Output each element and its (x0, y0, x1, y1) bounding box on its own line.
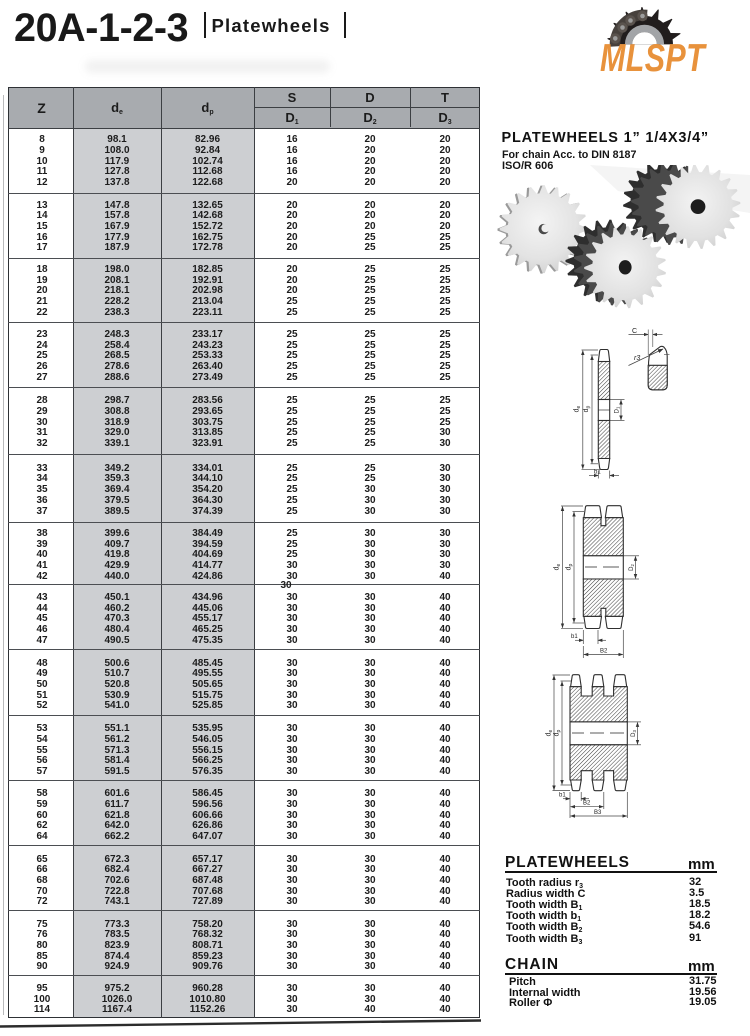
svg-text:de: de (574, 405, 582, 412)
svg-text:D2: D2 (629, 564, 635, 571)
svg-text:dp: dp (566, 563, 574, 570)
svg-text:de: de (554, 563, 562, 570)
svg-text:b1: b1 (594, 470, 601, 476)
svg-text:dp: dp (583, 405, 591, 412)
svg-text:b1: b1 (559, 793, 566, 799)
svg-text:D1: D1 (615, 406, 621, 413)
svg-text:b1: b1 (571, 634, 578, 640)
svg-text:B2: B2 (583, 801, 591, 807)
svg-text:B2: B2 (600, 649, 608, 655)
svg-text:D3: D3 (631, 730, 637, 737)
svg-text:B3: B3 (594, 810, 602, 816)
svg-text:r3: r3 (634, 355, 640, 362)
svg-text:C: C (632, 328, 637, 335)
svg-text:dp: dp (554, 729, 562, 736)
